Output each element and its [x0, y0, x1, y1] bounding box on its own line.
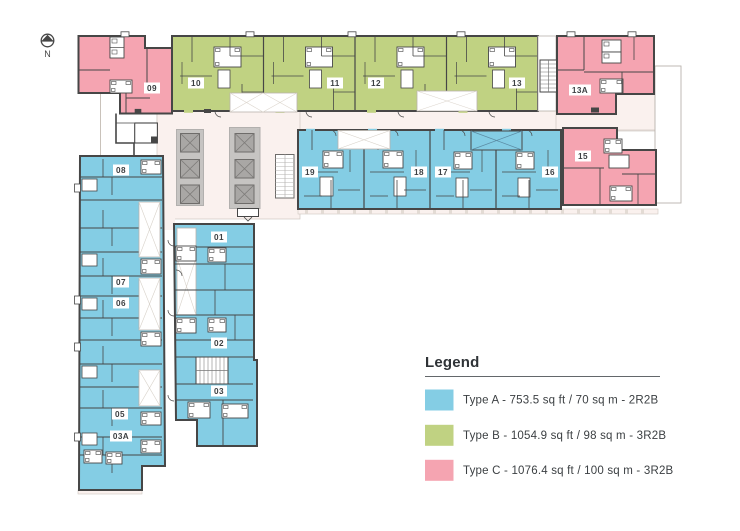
svg-text:05: 05 — [115, 410, 125, 419]
svg-text:03: 03 — [214, 387, 224, 396]
svg-text:08: 08 — [116, 166, 126, 175]
svg-text:17: 17 — [438, 168, 448, 177]
svg-text:07: 07 — [116, 278, 126, 287]
svg-text:09: 09 — [147, 84, 157, 93]
svg-text:Type B - 1054.9 sq ft / 98 sq: Type B - 1054.9 sq ft / 98 sq m - 3R2B — [463, 430, 666, 442]
svg-text:16: 16 — [545, 168, 555, 177]
svg-text:10: 10 — [191, 79, 201, 88]
svg-text:15: 15 — [578, 152, 588, 161]
svg-text:Legend: Legend — [425, 354, 480, 371]
svg-text:Type A - 753.5 sq ft / 70 sq m: Type A - 753.5 sq ft / 70 sq m - 2R2B — [463, 395, 658, 407]
svg-text:18: 18 — [414, 168, 424, 177]
svg-text:N: N — [44, 49, 51, 59]
svg-text:13: 13 — [512, 79, 522, 88]
svg-text:06: 06 — [116, 299, 126, 308]
svg-text:13A: 13A — [572, 86, 588, 95]
svg-text:02: 02 — [214, 339, 224, 348]
svg-text:Type C - 1076.4 sq ft / 100 sq: Type C - 1076.4 sq ft / 100 sq m - 3R2B — [463, 465, 674, 477]
svg-text:19: 19 — [305, 168, 315, 177]
svg-text:01: 01 — [214, 233, 224, 242]
svg-text:11: 11 — [330, 79, 340, 88]
svg-text:03A: 03A — [113, 432, 129, 441]
svg-text:12: 12 — [371, 79, 381, 88]
